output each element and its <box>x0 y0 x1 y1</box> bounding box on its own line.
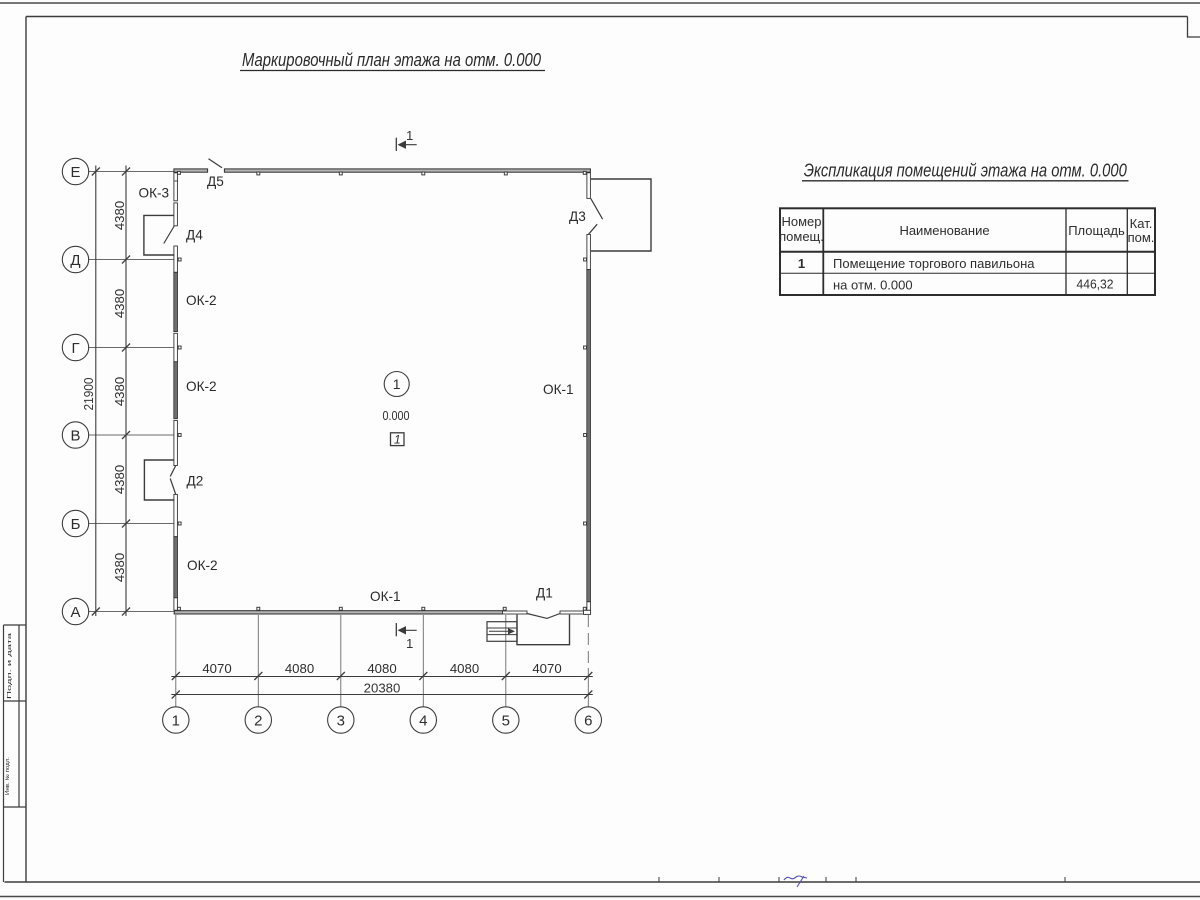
svg-text:Наименование: Наименование <box>899 223 989 238</box>
svg-text:А: А <box>70 604 80 621</box>
svg-text:4070: 4070 <box>202 661 231 676</box>
svg-text:ОК-3: ОК-3 <box>139 186 170 201</box>
svg-text:1: 1 <box>172 712 180 729</box>
svg-text:Кат.: Кат. <box>1130 216 1153 231</box>
svg-text:Е: Е <box>70 164 80 181</box>
svg-text:1: 1 <box>798 256 805 271</box>
svg-text:5: 5 <box>502 712 510 729</box>
svg-text:ОК-1: ОК-1 <box>543 382 574 397</box>
svg-text:4070: 4070 <box>532 661 561 676</box>
svg-text:4380: 4380 <box>112 553 127 582</box>
svg-text:Д5: Д5 <box>207 174 224 189</box>
svg-text:В: В <box>70 427 80 444</box>
svg-text:пом.: пом. <box>1128 230 1155 245</box>
svg-text:446,32: 446,32 <box>1077 277 1114 292</box>
svg-text:ОК-2: ОК-2 <box>186 293 217 308</box>
svg-text:Номер: Номер <box>781 214 821 229</box>
svg-text:4080: 4080 <box>285 661 314 676</box>
svg-text:Маркировочный план этажа на от: Маркировочный план этажа на отм. 0.000 <box>242 49 542 70</box>
svg-text:Б: Б <box>71 516 81 533</box>
svg-text:ОК-1: ОК-1 <box>370 589 401 604</box>
svg-text:Инв. № подл.: Инв. № подл. <box>5 757 11 795</box>
svg-text:Д2: Д2 <box>187 474 204 489</box>
svg-text:4080: 4080 <box>450 661 479 676</box>
svg-text:20380: 20380 <box>364 681 401 696</box>
svg-text:2: 2 <box>254 712 262 729</box>
svg-text:1: 1 <box>394 432 401 446</box>
svg-text:на отм. 0.000: на отм. 0.000 <box>833 278 913 293</box>
svg-text:Д4: Д4 <box>186 228 203 243</box>
svg-text:Г: Г <box>71 340 79 357</box>
svg-text:Д: Д <box>70 252 80 269</box>
svg-text:21900: 21900 <box>81 378 96 411</box>
svg-text:Помещение торгового павильона: Помещение торгового павильона <box>833 256 1035 271</box>
svg-text:Д3: Д3 <box>569 209 586 224</box>
svg-text:4380: 4380 <box>112 377 127 406</box>
svg-text:1: 1 <box>406 636 413 651</box>
svg-text:6: 6 <box>584 712 592 729</box>
svg-text:Площадь: Площадь <box>1068 223 1125 238</box>
svg-text:1: 1 <box>393 376 401 392</box>
svg-text:4: 4 <box>419 712 427 729</box>
svg-text:0.000: 0.000 <box>383 408 410 423</box>
svg-text:1: 1 <box>406 128 413 143</box>
svg-text:4380: 4380 <box>112 201 127 230</box>
svg-text:3: 3 <box>337 712 345 729</box>
svg-text:4080: 4080 <box>367 661 396 676</box>
svg-text:Подп. и дата: Подп. и дата <box>7 632 13 699</box>
svg-text:4380: 4380 <box>112 465 127 494</box>
svg-text:4380: 4380 <box>112 289 127 318</box>
svg-text:Д1: Д1 <box>536 586 553 601</box>
svg-text:ОК-2: ОК-2 <box>187 558 218 573</box>
svg-text:помещ.: помещ. <box>779 229 824 244</box>
svg-text:ОК-2: ОК-2 <box>186 379 217 394</box>
svg-text:Экспликация помещений этажа на: Экспликация помещений этажа на отм. 0.00… <box>804 160 1128 181</box>
